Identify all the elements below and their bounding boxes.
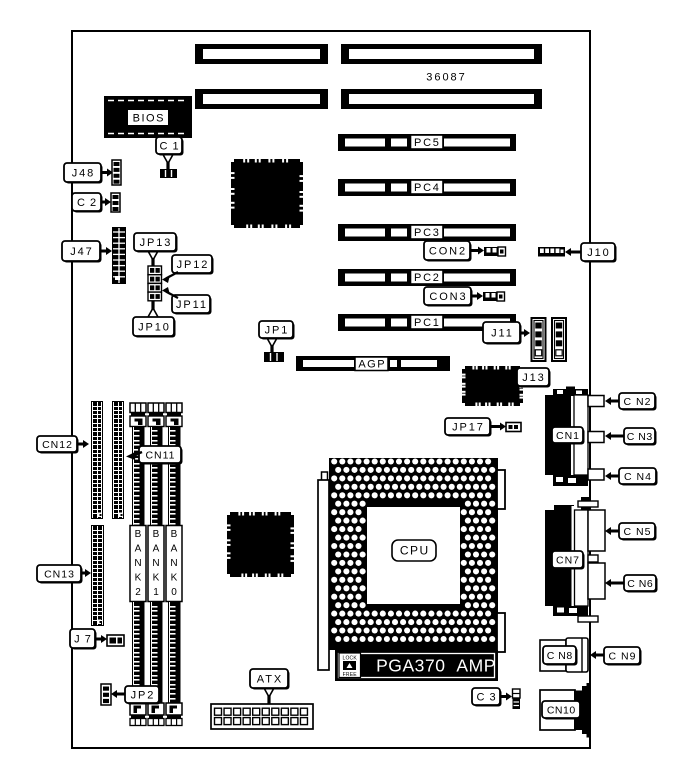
svg-text:CN7: CN7 — [556, 554, 580, 566]
svg-text:J48: J48 — [72, 167, 95, 179]
svg-text:PC2: PC2 — [414, 272, 441, 284]
svg-text:PC5: PC5 — [414, 137, 441, 149]
svg-text:K: K — [135, 573, 142, 584]
svg-text:B: B — [153, 529, 160, 540]
svg-text:JP2: JP2 — [131, 689, 156, 701]
svg-text:PGA370 AMP: PGA370 AMP — [376, 656, 496, 676]
svg-text:ATX: ATX — [257, 673, 283, 685]
svg-text:N: N — [134, 558, 141, 569]
svg-text:CN13: CN13 — [44, 568, 75, 580]
svg-text:BIOS: BIOS — [133, 113, 165, 125]
svg-text:FREE: FREE — [343, 672, 358, 678]
svg-text:A: A — [135, 544, 142, 555]
svg-text:JP17: JP17 — [452, 421, 485, 433]
svg-text:J13: J13 — [522, 372, 545, 384]
svg-text:JP11: JP11 — [176, 299, 208, 311]
svg-text:CON2: CON2 — [429, 245, 467, 257]
svg-text:CN1: CN1 — [556, 430, 580, 442]
svg-text:CN10: CN10 — [547, 704, 576, 716]
svg-text:J47: J47 — [70, 246, 93, 258]
svg-text:CN11: CN11 — [145, 449, 175, 461]
svg-text:C N5: C N5 — [624, 526, 652, 538]
svg-text:C 1: C 1 — [159, 140, 179, 152]
svg-text:N: N — [152, 558, 159, 569]
svg-text:PC4: PC4 — [414, 182, 441, 194]
svg-text:C 2: C 2 — [77, 197, 97, 209]
svg-text:C 3: C 3 — [476, 691, 496, 703]
svg-text:C N9: C N9 — [609, 650, 637, 662]
svg-text:CON3: CON3 — [429, 291, 467, 303]
svg-text:JP1: JP1 — [265, 324, 290, 336]
svg-text:K: K — [171, 573, 178, 584]
svg-text:36087: 36087 — [426, 72, 467, 84]
svg-text:C N8: C N8 — [547, 650, 573, 662]
svg-text:C N3: C N3 — [627, 431, 653, 443]
svg-text:PC1: PC1 — [414, 317, 441, 329]
svg-text:J 7: J 7 — [74, 633, 92, 645]
svg-text:JP13: JP13 — [140, 237, 173, 249]
svg-text:1: 1 — [153, 587, 159, 598]
svg-text:B: B — [171, 529, 178, 540]
svg-text:JP10: JP10 — [138, 321, 171, 333]
svg-text:CN12: CN12 — [42, 439, 73, 451]
svg-text:0: 0 — [171, 587, 177, 598]
svg-text:J10: J10 — [587, 247, 610, 259]
svg-text:JP12: JP12 — [177, 259, 210, 271]
svg-text:C N2: C N2 — [624, 396, 652, 408]
svg-text:K: K — [153, 573, 160, 584]
svg-text:CPU: CPU — [400, 544, 430, 558]
svg-text:J11: J11 — [491, 327, 514, 339]
svg-text:B: B — [135, 529, 142, 540]
svg-text:2: 2 — [135, 587, 141, 598]
svg-text:C N4: C N4 — [624, 471, 652, 483]
svg-text:N: N — [170, 558, 177, 569]
svg-text:A: A — [153, 544, 160, 555]
svg-text:C N6: C N6 — [627, 578, 653, 590]
svg-text:A: A — [171, 544, 178, 555]
svg-text:AGP: AGP — [358, 359, 386, 371]
svg-text:PC3: PC3 — [414, 227, 441, 239]
svg-text:LOCK: LOCK — [342, 656, 357, 662]
